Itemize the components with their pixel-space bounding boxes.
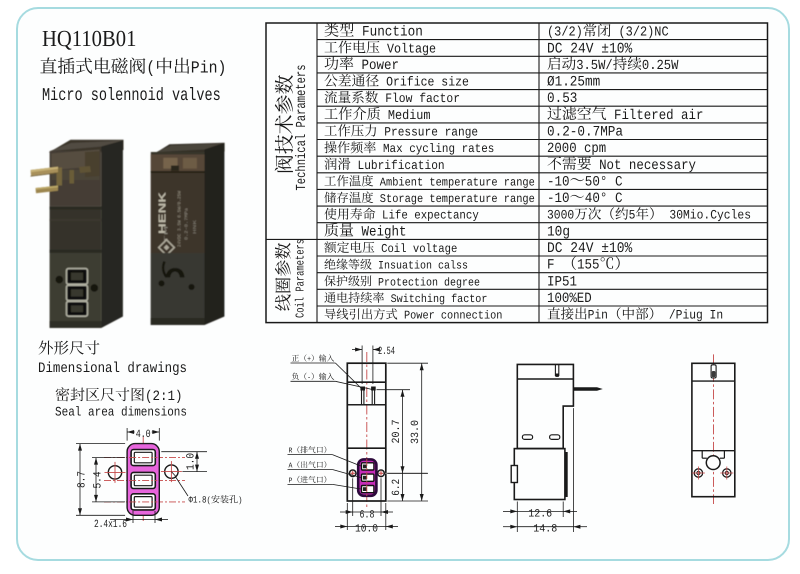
svg-text:Pin): Pin) bbox=[191, 60, 227, 79]
svg-text:Weight: Weight bbox=[362, 224, 407, 240]
svg-text:Life expectancy: Life expectancy bbox=[382, 209, 479, 223]
svg-text:Max cycling rates: Max cycling rates bbox=[383, 142, 494, 156]
svg-text:-10: -10 bbox=[547, 174, 570, 190]
svg-text:Dimensional drawings: Dimensional drawings bbox=[38, 361, 187, 377]
svg-text:): ) bbox=[238, 496, 243, 506]
svg-text:6.8: 6.8 bbox=[360, 510, 375, 522]
svg-text:4.0: 4.0 bbox=[136, 429, 151, 441]
svg-text:Orifice size: Orifice size bbox=[386, 75, 469, 90]
svg-text:Coil voltage: Coil voltage bbox=[381, 242, 457, 256]
svg-text:0.25W: 0.25W bbox=[642, 58, 679, 74]
svg-text:20.7: 20.7 bbox=[391, 420, 403, 444]
svg-text:-10: -10 bbox=[547, 191, 570, 207]
svg-text:1.0: 1.0 bbox=[186, 453, 198, 470]
svg-text:Filtered air: Filtered air bbox=[614, 108, 703, 124]
svg-text:5.4: 5.4 bbox=[93, 471, 105, 488]
svg-text:Lubrification: Lubrification bbox=[358, 158, 445, 173]
svg-text:10.0: 10.0 bbox=[355, 524, 378, 536]
svg-text:0.2-0.7MPa: 0.2-0.7MPa bbox=[184, 208, 190, 240]
svg-text:10g: 10g bbox=[547, 224, 570, 240]
svg-text:Power: Power bbox=[362, 58, 400, 74]
svg-text:5: 5 bbox=[629, 208, 636, 223]
svg-text:14.8: 14.8 bbox=[533, 524, 557, 536]
svg-text:Pressure range: Pressure range bbox=[384, 125, 478, 140]
svg-text:(3/2)NC: (3/2)NC bbox=[619, 26, 669, 41]
svg-text:2.4x1.6: 2.4x1.6 bbox=[94, 519, 127, 531]
svg-text:0.2-0.7MPa: 0.2-0.7MPa bbox=[547, 125, 623, 141]
svg-text:3000: 3000 bbox=[547, 208, 574, 223]
svg-text:12.6: 12.6 bbox=[528, 509, 552, 521]
svg-text:Ambient temperature range: Ambient temperature range bbox=[380, 175, 535, 189]
svg-text:Voltage: Voltage bbox=[387, 41, 436, 56]
svg-text:2000 cpm: 2000 cpm bbox=[547, 141, 606, 157]
svg-text:(: ( bbox=[146, 60, 155, 79]
svg-text:155: 155 bbox=[577, 258, 600, 274]
svg-text:8.7: 8.7 bbox=[77, 471, 89, 488]
svg-text:33.0: 33.0 bbox=[410, 420, 422, 444]
svg-text:Function: Function bbox=[362, 25, 423, 41]
svg-text:HNK: HNK bbox=[193, 219, 198, 234]
svg-text:Switching factor: Switching factor bbox=[391, 293, 488, 306]
svg-text:DC 24V ±10%: DC 24V ±10% bbox=[547, 241, 632, 257]
svg-text:Pin: Pin bbox=[588, 308, 608, 323]
svg-text:Coil Parameters: Coil Parameters bbox=[293, 239, 307, 318]
svg-text:DC 24V ±10%: DC 24V ±10% bbox=[547, 41, 632, 57]
svg-text:Ø1.25mm: Ø1.25mm bbox=[547, 75, 600, 91]
svg-text:50° C: 50° C bbox=[585, 174, 623, 190]
svg-text:0.53: 0.53 bbox=[547, 91, 577, 107]
svg-text:(3/2): (3/2) bbox=[547, 26, 583, 41]
svg-text:3.5W/: 3.5W/ bbox=[576, 58, 613, 74]
svg-text:F: F bbox=[547, 258, 555, 274]
svg-text:2.54: 2.54 bbox=[378, 346, 395, 358]
svg-text:(: ( bbox=[207, 496, 212, 506]
svg-text:Micro solennoid valves: Micro solennoid valves bbox=[42, 86, 221, 106]
svg-text:30Mio.Cycles: 30Mio.Cycles bbox=[669, 208, 751, 223]
svg-text:Insuation calss: Insuation calss bbox=[378, 260, 468, 273]
svg-text:(2:1): (2:1) bbox=[145, 389, 183, 405]
svg-text:IP51: IP51 bbox=[547, 274, 577, 290]
svg-text:24VDC 3.5W 0.5W/0.25W: 24VDC 3.5W 0.5W/0.25W bbox=[177, 191, 183, 247]
svg-text:HQ110B01: HQ110B01 bbox=[42, 26, 136, 51]
svg-text:40° C: 40° C bbox=[585, 191, 623, 207]
svg-text:Not necessary: Not necessary bbox=[599, 158, 696, 174]
svg-text:Storage temperature range: Storage temperature range bbox=[380, 192, 535, 206]
svg-text:Protection degree: Protection degree bbox=[378, 276, 480, 289]
svg-text:100%ED: 100%ED bbox=[547, 291, 592, 307]
svg-text:Flow factor: Flow factor bbox=[385, 91, 460, 106]
svg-text:Seal area dimensions: Seal area dimensions bbox=[55, 405, 187, 420]
svg-text:/Piug In: /Piug In bbox=[669, 308, 723, 323]
svg-text:Power connection: Power connection bbox=[404, 309, 502, 323]
svg-text:Φ1.8: Φ1.8 bbox=[189, 495, 207, 506]
svg-text:6.2: 6.2 bbox=[391, 479, 403, 496]
svg-text:Technical Parameters: Technical Parameters bbox=[295, 65, 310, 191]
svg-text:Medium: Medium bbox=[388, 109, 431, 124]
